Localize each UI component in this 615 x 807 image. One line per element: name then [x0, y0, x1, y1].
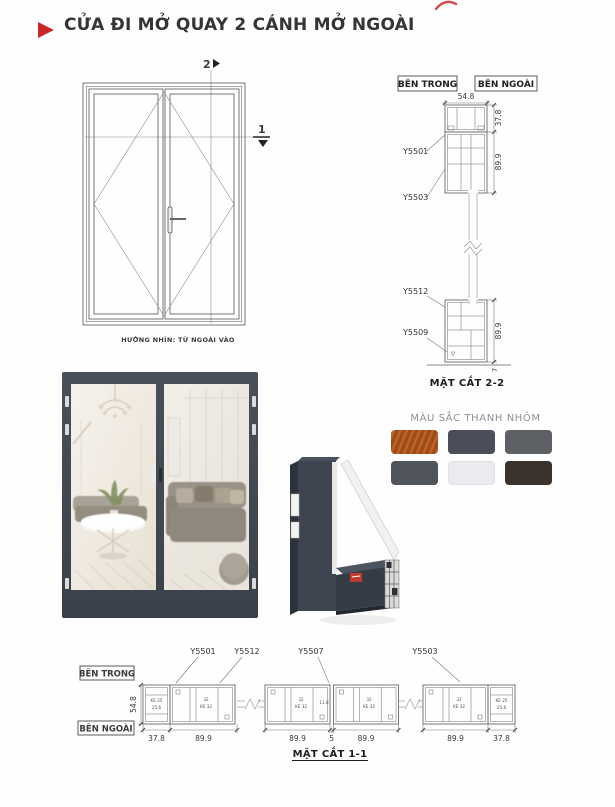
- profile-label-y5507: Y5507: [297, 647, 323, 656]
- page-title: CỬA ĐI MỞ QUAY 2 CÁNH MỞ NGOÀI: [64, 15, 415, 35]
- profile-label-y5501: Y5501: [189, 647, 215, 656]
- top-profile-drawing: [445, 105, 487, 193]
- section-line-1: 1: [85, 123, 270, 147]
- door-elevation-drawing: 2 1: [60, 56, 275, 351]
- photo-glass-left: [71, 384, 156, 590]
- chamber-text: 32: [203, 697, 209, 702]
- hinge-block: [291, 494, 299, 516]
- chamber-text: 25.6: [497, 705, 507, 710]
- inside-label-box: BÊN TRONG: [398, 76, 457, 91]
- outside-label: BÊN NGOÀI: [478, 78, 534, 90]
- color-swatch-wood-grain: [391, 430, 438, 454]
- cut-face: [385, 560, 399, 608]
- profile-label-y5512: Y5512: [233, 647, 259, 656]
- color-swatch-silver-white: [448, 461, 495, 485]
- door-frame: [83, 83, 245, 325]
- section-1-1-drawing: Y5501 Y5512 Y5507 Y5503 BÊN TRONG BÊN NG…: [70, 644, 550, 769]
- section-arrow-2-icon: [213, 59, 220, 68]
- door-leaf-right: [165, 89, 239, 319]
- outside-label-box: BÊN NGOÀI: [475, 76, 537, 91]
- dim-height: [138, 683, 143, 726]
- dim-value: 37.8: [148, 734, 165, 743]
- profile-label-y5503: Y5503: [402, 193, 428, 202]
- section-2-2-caption: MẶT CẮT 2-2: [430, 374, 505, 389]
- opening-direction-lines: [94, 92, 234, 316]
- chamber-text: KE 32: [363, 704, 375, 709]
- section-arrow-1-icon: [258, 140, 268, 147]
- hinge-icon: [252, 578, 256, 589]
- profile-corner-3d-render: [278, 446, 403, 636]
- hinge-icon: [252, 424, 256, 435]
- dim-bottom-height-value: 89.9: [494, 322, 503, 339]
- elevation-caption: HƯỚNG NHÌN: TỪ NGOÀI VÀO: [121, 335, 235, 344]
- section-marker-2-label: 2: [203, 58, 211, 71]
- glass-break-left: [237, 699, 265, 709]
- section-2-2-drawing: BÊN TRONG BÊN NGOÀI 54.8: [385, 68, 610, 398]
- horizontal-profile-bar: [336, 560, 393, 615]
- sofa: [166, 482, 246, 542]
- chamber-text: KE 32: [295, 704, 307, 709]
- outside-label: BÊN NGOÀI: [79, 723, 132, 735]
- dim-value: 89.9: [358, 734, 375, 743]
- profile-label-y5512: Y5512: [402, 287, 428, 296]
- dim-value: 5: [329, 734, 334, 743]
- section-1-1-caption: MẶT CẮT 1-1: [293, 745, 368, 760]
- photo-door-handle: [152, 464, 156, 484]
- chamber-text: 11.8: [319, 700, 329, 705]
- profile-label-y5509: Y5509: [402, 328, 428, 337]
- color-swatch-graphite-gray: [448, 430, 495, 454]
- dim-height-value: 54.8: [129, 696, 138, 713]
- dim-frame-height-value: 37.8: [494, 109, 503, 126]
- inside-label: BÊN TRONG: [79, 668, 135, 680]
- door-leaf-left: [89, 89, 163, 319]
- chamber-text: KE 32: [453, 704, 465, 709]
- dim-ground-gap-value: 7: [491, 368, 499, 372]
- color-swatch-dark-brown: [505, 461, 552, 485]
- dim-value: 89.9: [289, 734, 306, 743]
- photo-door-handle-lever: [159, 468, 162, 482]
- color-swatch-medium-gray: [505, 430, 552, 454]
- chamber-text: 32: [366, 697, 372, 702]
- chamber-text: KE 32: [200, 704, 212, 709]
- bottom-profile-drawing: [445, 300, 487, 362]
- vertical-profile-bar: [290, 457, 340, 615]
- section-marker-1-label: 1: [258, 123, 266, 136]
- chamber-text: 32: [456, 697, 462, 702]
- section-line-2: 2: [203, 58, 220, 323]
- section-bullet-icon: [38, 22, 54, 38]
- color-swatch-slate-gray: [391, 461, 438, 485]
- dim-value: 89.9: [447, 734, 464, 743]
- dim-sash-height-value: 89.9: [494, 153, 503, 170]
- hinge-icon: [65, 578, 69, 589]
- color-swatches: [391, 430, 552, 485]
- chamber-text: KE 25: [150, 698, 162, 703]
- inside-label-box: BÊN TRONG: [79, 666, 135, 680]
- red-swoosh-decoration: [432, 0, 462, 12]
- hinge-icon: [65, 424, 69, 435]
- hinge-icon: [65, 396, 69, 407]
- photo-glass-right: [164, 384, 249, 590]
- catalog-page: CỬA ĐI MỞ QUAY 2 CÁNH MỞ NGOÀI 2 1: [0, 0, 615, 807]
- chamber-text: KE 25: [495, 698, 507, 703]
- dim-value: 37.8: [493, 734, 510, 743]
- profile-label-y5501: Y5501: [402, 147, 428, 156]
- chamber-text: 32: [298, 697, 304, 702]
- outside-label-box: BÊN NGOÀI: [78, 721, 134, 735]
- door-handle: [168, 207, 186, 233]
- profile-label-y5503: Y5503: [411, 647, 437, 656]
- dim-bottom-lines: [141, 724, 517, 733]
- chamber-text: 25.6: [152, 705, 162, 710]
- dim-value: 89.9: [195, 734, 212, 743]
- inside-label: BÊN TRONG: [398, 78, 457, 90]
- hinge-block: [291, 522, 299, 538]
- door-product-photo: [62, 372, 258, 618]
- colors-panel-title: MÀU SẮC THANH NHÔM: [388, 413, 563, 424]
- dim-width-value: 54.8: [458, 92, 475, 101]
- brand-label: [350, 573, 362, 582]
- hinge-icon: [252, 396, 256, 407]
- glass-break-right: [399, 699, 424, 709]
